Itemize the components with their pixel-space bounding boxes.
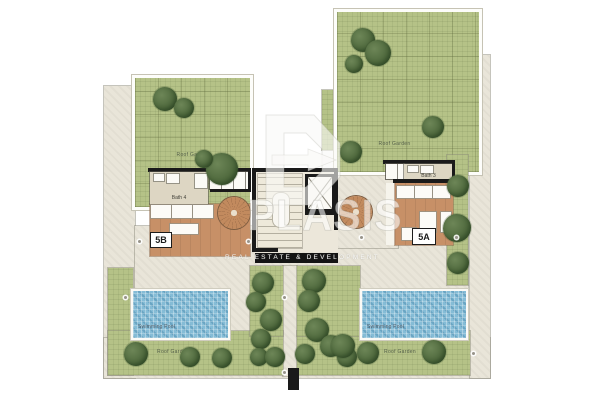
watermark-brand: PLASIS <box>231 194 419 238</box>
watermark-tagline: REAL ESTATE & DEVELOPMENT <box>200 254 405 261</box>
floor-plan-canvas: Roof Garden Roof Garden Roof Garden Roof… <box>0 0 600 400</box>
survey-marker <box>283 296 286 299</box>
survey-marker <box>138 240 141 243</box>
survey-marker <box>283 371 286 374</box>
survey-marker <box>455 236 458 239</box>
survey-marker <box>472 352 475 355</box>
survey-marker <box>124 296 127 299</box>
survey-marker <box>247 240 250 243</box>
